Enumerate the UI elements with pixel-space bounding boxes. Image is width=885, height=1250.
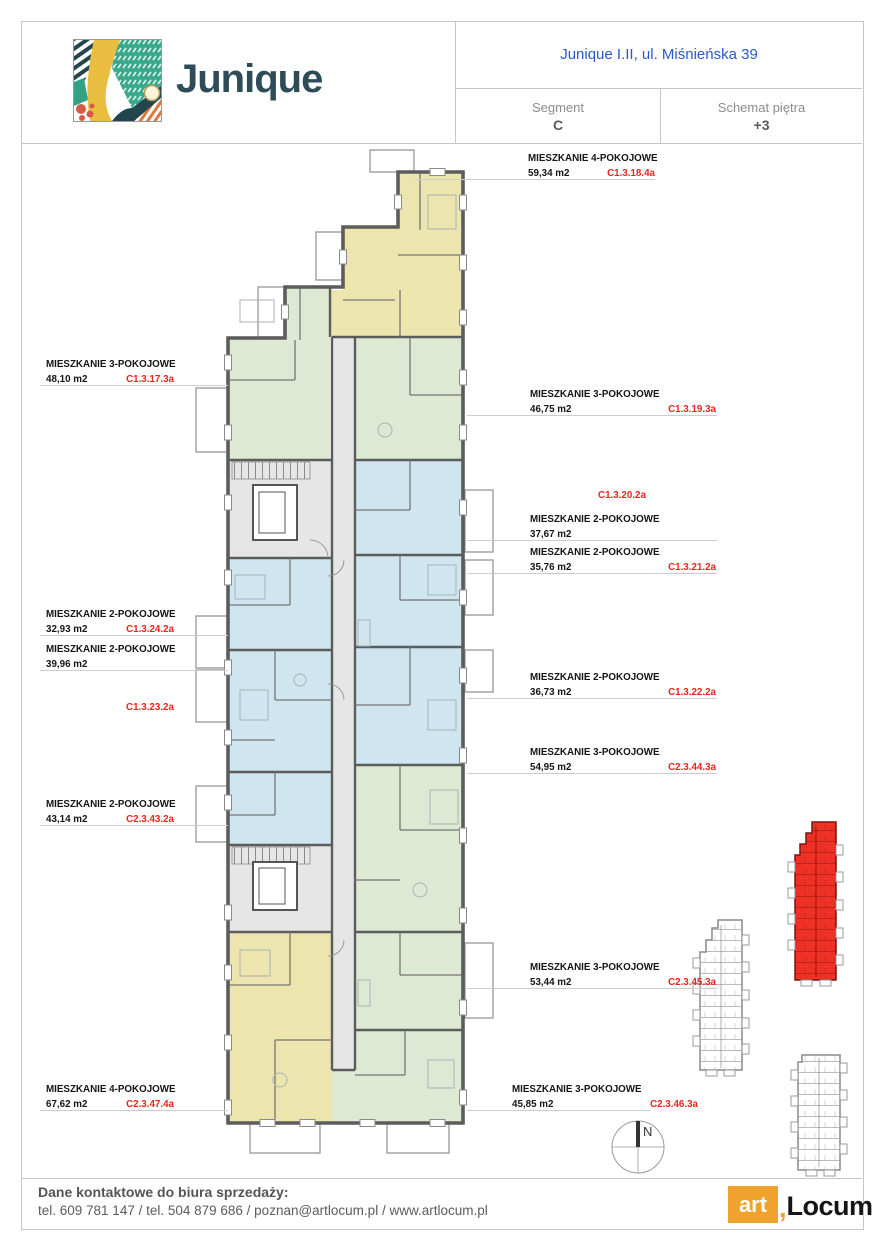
header-bottom-border (21, 143, 862, 144)
apt-type: MIESZKANIE 2-POKOJOWE (530, 670, 716, 685)
apt-label-c1-3-19: MIESZKANIE 3-POKOJOWE 46,75 m2 C1.3.19.3… (530, 387, 716, 417)
apt-type: MIESZKANIE 2-POKOJOWE (46, 642, 174, 657)
apt-label-c2-3-43: MIESZKANIE 2-POKOJOWE 43,14 m2 C2.3.43.2… (46, 797, 174, 827)
artlocum-logo: art , Locum (728, 1186, 873, 1223)
apt-code: C2.3.46.3a (650, 1097, 698, 1112)
apt-code-c1-3-23: C1.3.23.2a (126, 700, 174, 715)
leader-line (40, 1110, 228, 1111)
apt-type: MIESZKANIE 2-POKOJOWE (530, 512, 716, 527)
apt-label-c1-3-24: MIESZKANIE 2-POKOJOWE 32,93 m2 C1.3.24.2… (46, 607, 174, 637)
floor-cell: Schemat piętra +3 (661, 89, 862, 143)
leader-line (40, 635, 228, 636)
leader-line (40, 825, 228, 826)
apt-label-c2-3-44: MIESZKANIE 3-POKOJOWE 54,95 m2 C2.3.44.3… (530, 745, 716, 775)
floorplan-page: Junique Junique I.II, ul. Miśnieńska 39 … (0, 0, 885, 1250)
leader-line (40, 670, 228, 671)
floor-schema-label: Schemat piętra (718, 100, 805, 115)
apt-type: MIESZKANIE 4-POKOJOWE (46, 1082, 174, 1097)
footer-contact-line: tel. 609 781 147 / tel. 504 879 686 / po… (38, 1203, 488, 1218)
segment-cell: Segment C (456, 89, 660, 143)
apt-label-c1-3-21: MIESZKANIE 2-POKOJOWE 35,76 m2 C1.3.21.2… (530, 545, 716, 575)
apt-type: MIESZKANIE 2-POKOJOWE (530, 545, 716, 560)
apt-type: MIESZKANIE 2-POKOJOWE (46, 797, 174, 812)
apt-type: MIESZKANIE 3-POKOJOWE (46, 357, 174, 372)
footer-heading: Dane kontaktowe do biura sprzedaży: (38, 1184, 289, 1200)
segment-value: C (553, 117, 563, 133)
apt-type: MIESZKANIE 2-POKOJOWE (46, 607, 174, 622)
floor-schema-value: +3 (754, 117, 770, 133)
leader-line (467, 698, 717, 699)
leader-line (40, 385, 228, 386)
apt-type: MIESZKANIE 4-POKOJOWE (528, 151, 655, 166)
apt-label-c1-3-20: MIESZKANIE 2-POKOJOWE 37,67 m2 (530, 512, 716, 542)
footer-top-border (21, 1178, 862, 1179)
compass-north-label: N (643, 1124, 652, 1139)
apt-label-c2-3-46: MIESZKANIE 3-POKOJOWE 45,85 m2 C2.3.46.3… (512, 1082, 698, 1112)
artlocum-logo-art: art (728, 1186, 778, 1223)
artlocum-logo-locum: Locum (787, 1189, 873, 1223)
leader-line (467, 415, 717, 416)
leader-line (467, 773, 717, 774)
apt-type: MIESZKANIE 3-POKOJOWE (530, 387, 716, 402)
segment-label: Segment (532, 100, 584, 115)
apt-type: MIESZKANIE 3-POKOJOWE (512, 1082, 698, 1097)
apt-type: MIESZKANIE 3-POKOJOWE (530, 960, 716, 975)
artlocum-logo-separator: , (779, 1193, 787, 1223)
apt-label-c2-3-45: MIESZKANIE 3-POKOJOWE 53,44 m2 C2.3.45.3… (530, 960, 716, 990)
leader-line (467, 988, 717, 989)
apt-label-c1-3-23: MIESZKANIE 2-POKOJOWE 39,96 m2 (46, 642, 174, 672)
apt-type: MIESZKANIE 3-POKOJOWE (530, 745, 716, 760)
junique-logo-graphic (72, 38, 163, 123)
leader-line (467, 540, 717, 541)
project-title: Junique I.II, ul. Miśnieńska 39 (456, 21, 862, 87)
apt-label-c1-3-18: MIESZKANIE 4-POKOJOWE 59,34 m2 C1.3.18.4… (528, 151, 655, 181)
apt-label-c1-3-22: MIESZKANIE 2-POKOJOWE 36,73 m2 C1.3.22.2… (530, 670, 716, 700)
leader-line (467, 1110, 650, 1111)
apt-code-c1-3-20: C1.3.20.2a (598, 488, 646, 503)
apt-label-c2-3-47: MIESZKANIE 4-POKOJOWE 67,62 m2 C2.3.47.4… (46, 1082, 174, 1112)
leader-line (467, 573, 717, 574)
apt-label-c1-3-17: MIESZKANIE 3-POKOJOWE 48,10 m2 C1.3.17.3… (46, 357, 174, 387)
leader-line (415, 179, 655, 180)
brand-wordmark: Junique (176, 57, 322, 102)
